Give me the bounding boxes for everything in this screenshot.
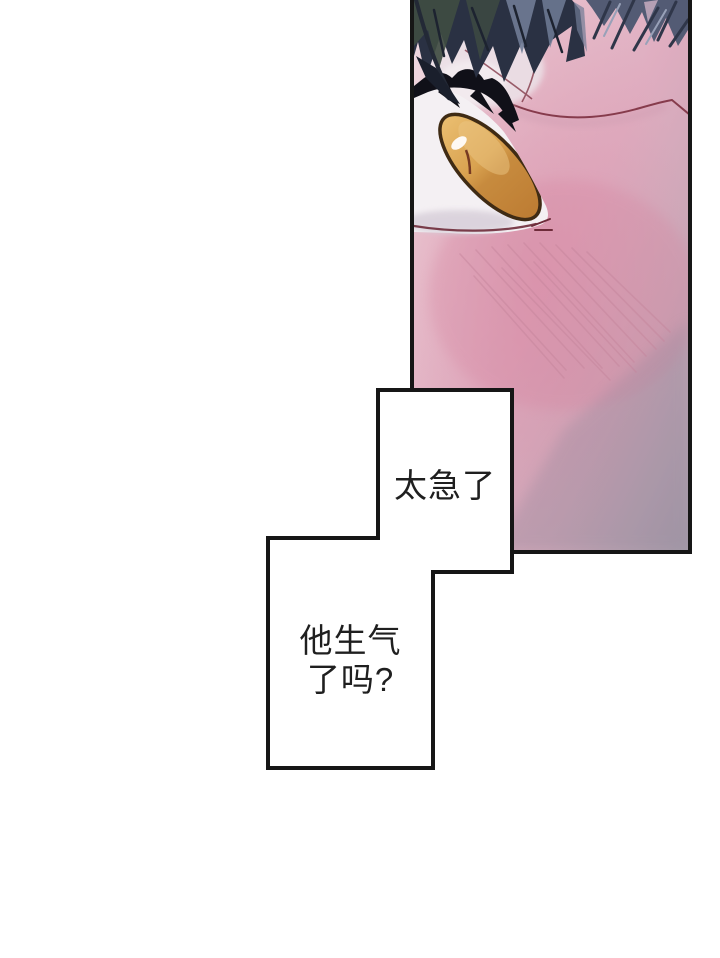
thought-bottom-line1: 他生气 bbox=[300, 622, 402, 659]
thought-bottom-line2: 了吗? bbox=[307, 661, 394, 698]
comic-page: 太急了 他生气了吗? bbox=[0, 0, 720, 958]
thought-box-bottom-text: 他生气了吗? bbox=[270, 540, 431, 766]
thought-top-label: 太急了 bbox=[394, 466, 496, 505]
